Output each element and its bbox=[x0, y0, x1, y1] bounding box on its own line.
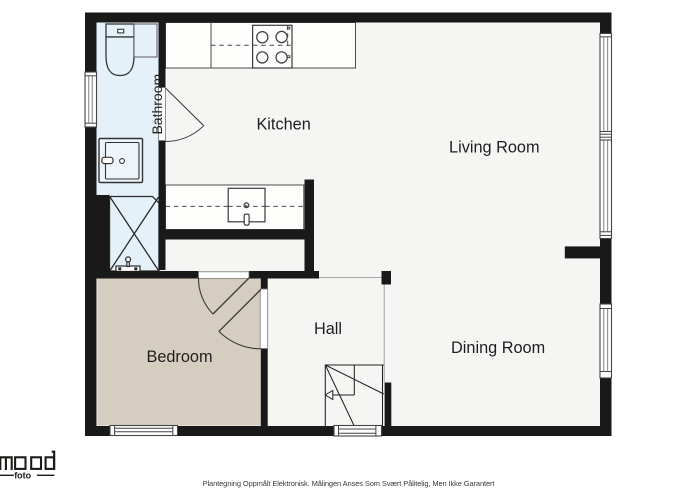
svg-text:Living Room: Living Room bbox=[449, 138, 540, 156]
svg-text:Bathroom: Bathroom bbox=[149, 74, 165, 135]
svg-text:Hall: Hall bbox=[314, 320, 342, 338]
svg-text:Kitchen: Kitchen bbox=[256, 116, 310, 134]
svg-text:Dining Room: Dining Room bbox=[451, 339, 545, 357]
svg-text:Bedroom: Bedroom bbox=[146, 348, 212, 366]
svg-text:foto: foto bbox=[14, 470, 31, 480]
svg-text:Plantegning Oppmålt Elektronis: Plantegning Oppmålt Elektronisk. Målinge… bbox=[203, 479, 496, 488]
